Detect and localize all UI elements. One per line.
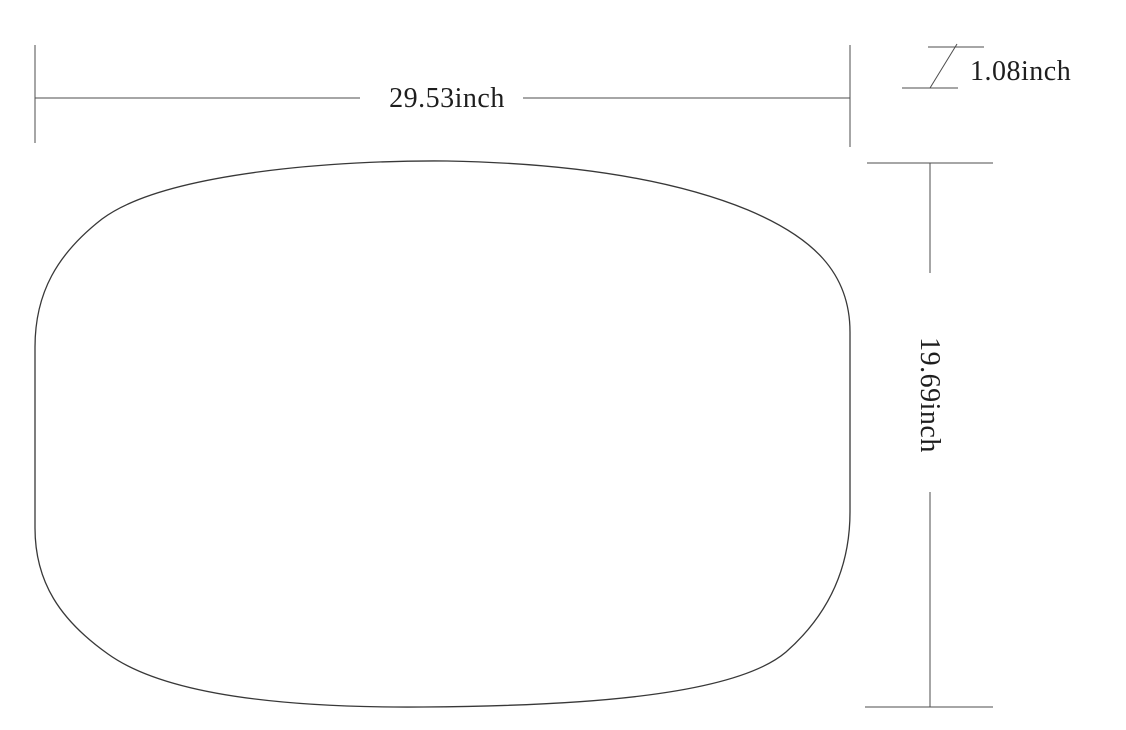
object-outline [35,161,850,707]
drawing-canvas [0,0,1126,730]
technical-dimension-drawing: 29.53inch 1.08inch 19.69inch [0,0,1126,730]
thickness-symbol-diagonal [930,44,957,88]
thickness-dimension-label: 1.08inch [970,58,1071,86]
width-dimension-label: 29.53inch [389,85,505,113]
height-dimension-label: 19.69inch [915,337,943,453]
